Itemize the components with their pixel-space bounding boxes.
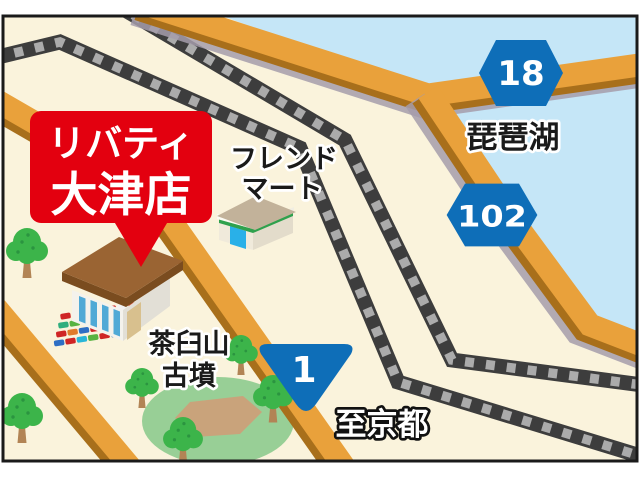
store-window [114,309,121,337]
store-window [79,296,86,324]
label-lake-biwa: 琵琶湖 [467,120,560,156]
label-kofun-2: 古墳 [162,361,216,392]
route-number: 1 [291,350,316,391]
route-number: 18 [497,54,544,94]
label-to-kyoto: 至京都 [336,407,429,443]
store-name-line1: リバティ [48,122,194,165]
map-canvas: 18 102 1 琵琶湖 フレンド マート 茶臼山 古墳 至京都 リバティ 大津… [0,0,640,480]
store-access-map: 18 102 1 琵琶湖 フレンド マート 茶臼山 古墳 至京都 リバティ 大津… [0,0,640,480]
label-friend-mart-1: フレンド [230,144,338,175]
store-window [102,305,109,333]
store-name-line2: 大津店 [51,168,192,223]
store-window [91,300,98,328]
label-kofun-1: 茶臼山 [149,329,230,360]
route-badge-102: 102 [447,184,538,247]
route-number: 102 [457,200,527,234]
label-friend-mart-2: マート [242,174,323,205]
route-badge-18: 18 [479,40,563,106]
